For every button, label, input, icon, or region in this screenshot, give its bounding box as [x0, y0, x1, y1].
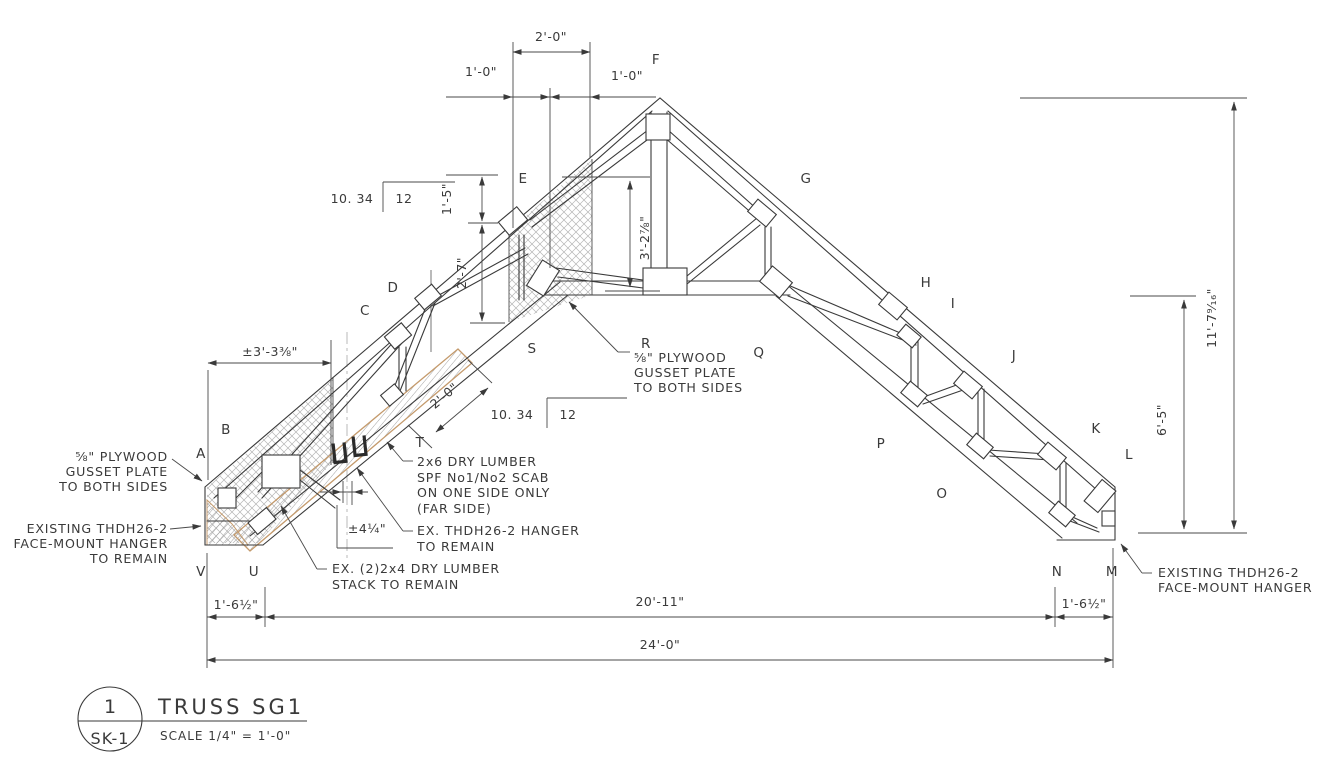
dim-overall-height: 11'-7⁹⁄₁₆" — [1204, 288, 1219, 348]
annotation-stack: EX. (2)2x4 DRY LUMBER STACK TO REMAIN — [332, 561, 500, 592]
label-N: N — [1052, 564, 1063, 580]
annotation-scab: 2x6 DRY LUMBER SPF No1/No2 SCAB ON ONE S… — [417, 454, 550, 516]
annotation-line: GUSSET PLATE — [66, 464, 168, 479]
annotation-line: ON ONE SIDE ONLY — [417, 485, 550, 500]
label-I: I — [951, 296, 955, 312]
dim-right-overhang: 1'-6½" — [1062, 596, 1107, 611]
sheet-reference: SK-1 — [91, 729, 130, 748]
title-block: 1 SK-1 TRUSS SG1 SCALE 1/4" = 1'-0" — [78, 687, 307, 751]
annotation-line: 2x6 DRY LUMBER — [417, 454, 537, 469]
slope-rise-1: 10. 34 — [331, 191, 374, 206]
slope-rise-2: 10. 34 — [491, 407, 534, 422]
dim-top-width: 2'-0" — [535, 29, 567, 44]
dimension-texts: 2'-0" 1'-0" 1'-0" 10. 34 12 10. 34 12 1'… — [214, 29, 1219, 652]
dim-span: 20'-11" — [635, 594, 684, 609]
label-E: E — [518, 171, 527, 187]
dim-gusset-extent: ±3'-3⅜" — [242, 344, 298, 359]
annotation-left-gusset: ⅝" PLYWOOD GUSSET PLATE TO BOTH SIDES — [58, 449, 168, 494]
dim-peak-offset-2: 2'-7" — [454, 257, 469, 289]
annotation-line: EX. (2)2x4 DRY LUMBER — [332, 561, 500, 576]
annotation-line: GUSSET PLATE — [634, 365, 736, 380]
annotation-center-gusset: ⅝" PLYWOOD GUSSET PLATE TO BOTH SIDES — [633, 350, 743, 395]
annotation-line: EXISTING THDH26-2 — [27, 521, 168, 536]
slope-run-2: 12 — [560, 407, 577, 422]
label-F: F — [652, 52, 660, 68]
annotation-line: ⅝" PLYWOOD — [634, 350, 727, 365]
dim-peak-offset-1: 1'-5" — [439, 183, 454, 215]
annotation-line: SPF No1/No2 SCAB — [417, 470, 549, 485]
drawing-title: TRUSS SG1 — [157, 695, 304, 719]
annotation-line: TO REMAIN — [416, 539, 495, 554]
annotation-line: TO BOTH SIDES — [58, 479, 168, 494]
annotation-line: STACK TO REMAIN — [332, 577, 459, 592]
label-V: V — [196, 564, 206, 580]
annotation-left-hanger: EXISTING THDH26-2 FACE-MOUNT HANGER TO R… — [14, 521, 168, 566]
truss-linework — [205, 98, 1115, 545]
detail-number: 1 — [104, 696, 116, 718]
annotation-line: TO BOTH SIDES — [633, 380, 743, 395]
label-M: M — [1106, 564, 1118, 580]
dim-king-height: 3'-2⅞" — [637, 216, 652, 261]
label-T: T — [415, 435, 425, 451]
label-Q: Q — [753, 345, 764, 361]
dim-top-right: 1'-0" — [611, 68, 643, 83]
label-K: K — [1091, 421, 1101, 437]
label-B: B — [221, 422, 231, 438]
label-L: L — [1125, 447, 1133, 463]
slope-run-1: 12 — [396, 191, 413, 206]
dim-overall-span: 24'-0" — [640, 637, 681, 652]
annotation-line: EX. THDH26-2 HANGER — [417, 523, 580, 538]
annotation-ex-hanger: EX. THDH26-2 HANGER TO REMAIN — [416, 523, 580, 554]
dim-left-overhang: 1'-6½" — [214, 597, 259, 612]
label-G: G — [801, 171, 812, 187]
label-U: U — [249, 564, 259, 580]
annotation-line: ⅝" PLYWOOD — [75, 449, 168, 464]
dim-stack-offset: ±4¼" — [348, 521, 386, 536]
label-D: D — [388, 280, 399, 296]
annotation-right-hanger: EXISTING THDH26-2 FACE-MOUNT HANGER — [1158, 565, 1312, 595]
label-H: H — [921, 275, 932, 291]
label-J: J — [1011, 348, 1016, 364]
dim-top-left: 1'-0" — [465, 64, 497, 79]
label-O: O — [936, 486, 947, 502]
label-S: S — [527, 341, 536, 357]
truss-drawing-sheet: A B C D E F G H I J K L M N O P Q R S T … — [0, 0, 1328, 769]
truss-sg1-drawing: A B C D E F G H I J K L M N O P Q R S T … — [0, 0, 1328, 769]
annotation-line: EXISTING THDH26-2 — [1158, 565, 1299, 580]
drawing-scale: SCALE 1/4" = 1'-0" — [160, 729, 291, 743]
annotation-line: FACE-MOUNT HANGER — [14, 536, 168, 551]
label-A: A — [196, 446, 206, 462]
label-C: C — [360, 303, 370, 319]
label-P: P — [877, 436, 886, 452]
annotation-line: (FAR SIDE) — [417, 501, 492, 516]
annotation-line: TO REMAIN — [89, 551, 168, 566]
annotation-line: FACE-MOUNT HANGER — [1158, 580, 1312, 595]
dim-right-height: 6'-5" — [1154, 404, 1169, 436]
